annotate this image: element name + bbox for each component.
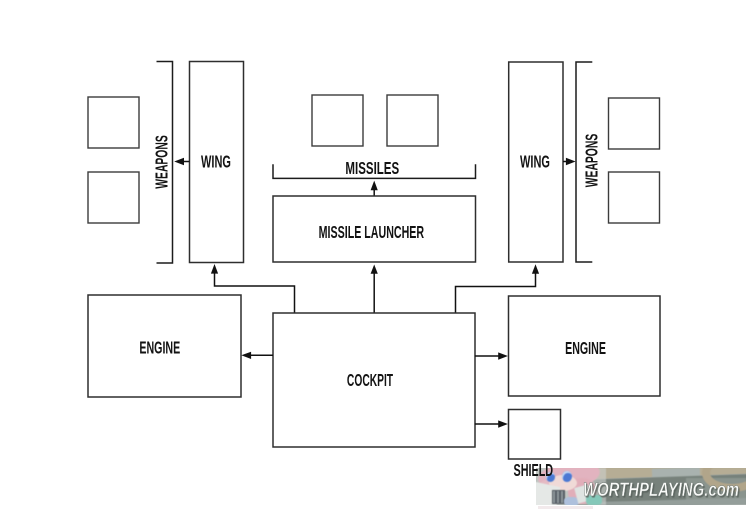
svg-text:MISSILES: MISSILES	[345, 158, 399, 178]
svg-text:ENGINE: ENGINE	[139, 339, 180, 358]
svg-text:SHIELD: SHIELD	[513, 461, 553, 480]
svg-text:WEAPONS: WEAPONS	[583, 134, 603, 188]
svg-text:MISSILE LAUNCHER: MISSILE LAUNCHER	[319, 224, 425, 243]
svg-text:WING: WING	[201, 153, 231, 172]
svg-text:COCKPIT: COCKPIT	[347, 371, 393, 391]
svg-text:WEAPONS: WEAPONS	[153, 135, 173, 189]
svg-text:WING: WING	[520, 153, 550, 172]
svg-text:ENGINE: ENGINE	[565, 339, 606, 358]
